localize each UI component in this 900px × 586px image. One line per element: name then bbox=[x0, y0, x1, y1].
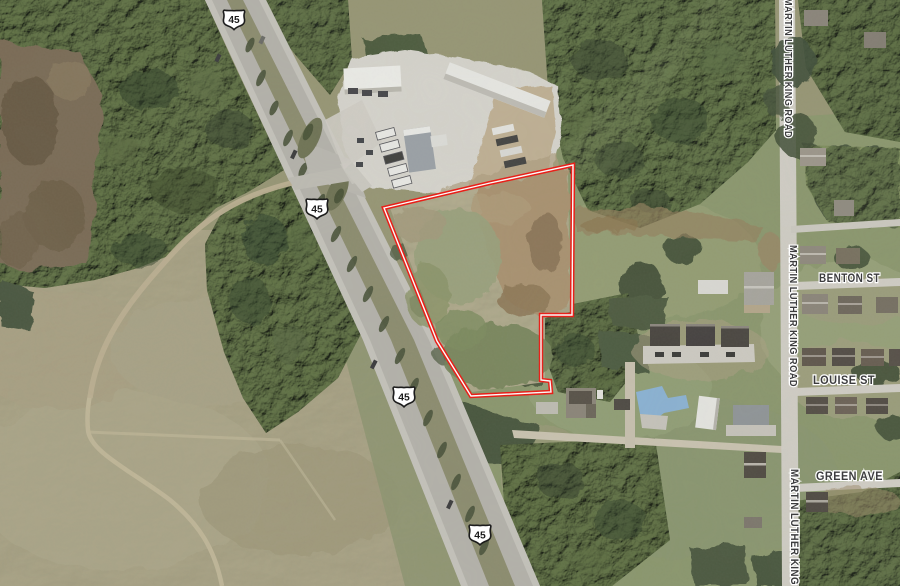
svg-text:BENTON ST: BENTON ST bbox=[819, 273, 880, 285]
svg-text:45: 45 bbox=[474, 530, 486, 541]
svg-text:45: 45 bbox=[228, 15, 240, 26]
svg-text:45: 45 bbox=[398, 392, 410, 403]
svg-text:45: 45 bbox=[311, 204, 323, 215]
svg-text:MARTIN LUTHER KING ROAD: MARTIN LUTHER KING ROAD bbox=[787, 245, 799, 387]
svg-text:MARTIN LUTHER KING ROAD: MARTIN LUTHER KING ROAD bbox=[788, 469, 800, 586]
svg-text:GREEN AVE: GREEN AVE bbox=[816, 471, 883, 483]
svg-text:LOUISE ST: LOUISE ST bbox=[813, 375, 875, 387]
svg-text:MARTIN LUTHER KING ROAD: MARTIN LUTHER KING ROAD bbox=[782, 0, 794, 138]
